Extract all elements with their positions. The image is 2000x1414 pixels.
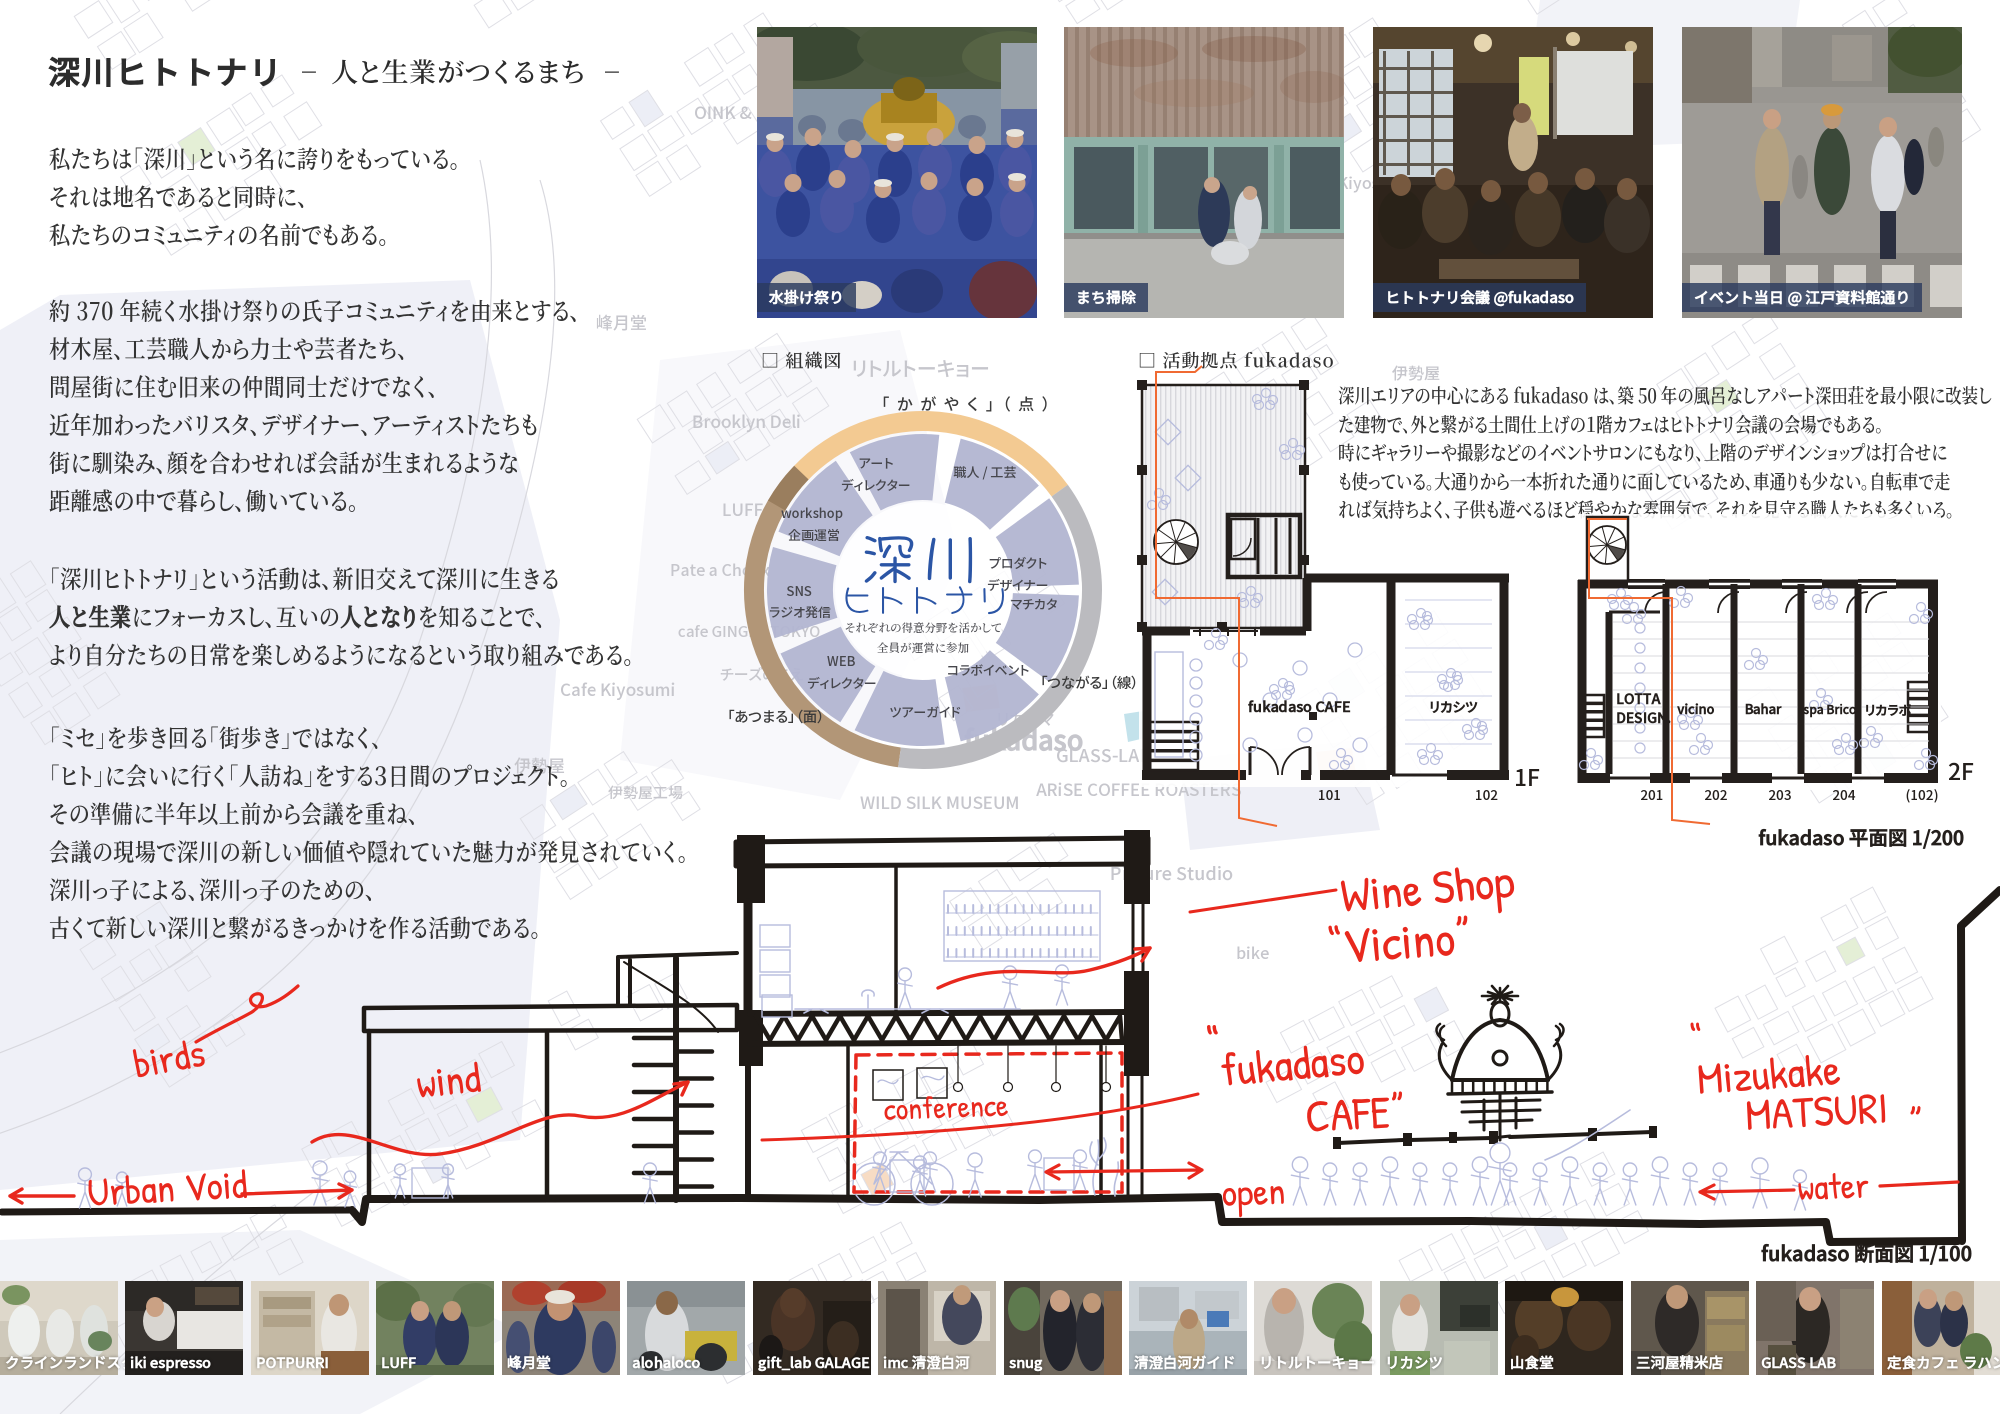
svg-text:MATSURI: MATSURI (1744, 1077, 1890, 1144)
svg-text:water: water (1797, 1161, 1870, 1212)
svg-text:CAFE”: CAFE” (1304, 1080, 1406, 1147)
svg-text:conference: conference (883, 1084, 1009, 1130)
svg-text:“: “ (1204, 1012, 1219, 1077)
svg-text:“Vicino”: “Vicino” (1324, 902, 1472, 980)
svg-text:Urban Void: Urban Void (86, 1157, 249, 1219)
svg-text:wind: wind (414, 1049, 484, 1112)
svg-text:birds: birds (129, 1025, 209, 1091)
svg-text:fukadaso 断面図 1/100: fukadaso 断面図 1/100 (1761, 1238, 1972, 1267)
svg-text:”: ” (1908, 1094, 1921, 1154)
svg-text:open: open (1221, 1164, 1287, 1218)
